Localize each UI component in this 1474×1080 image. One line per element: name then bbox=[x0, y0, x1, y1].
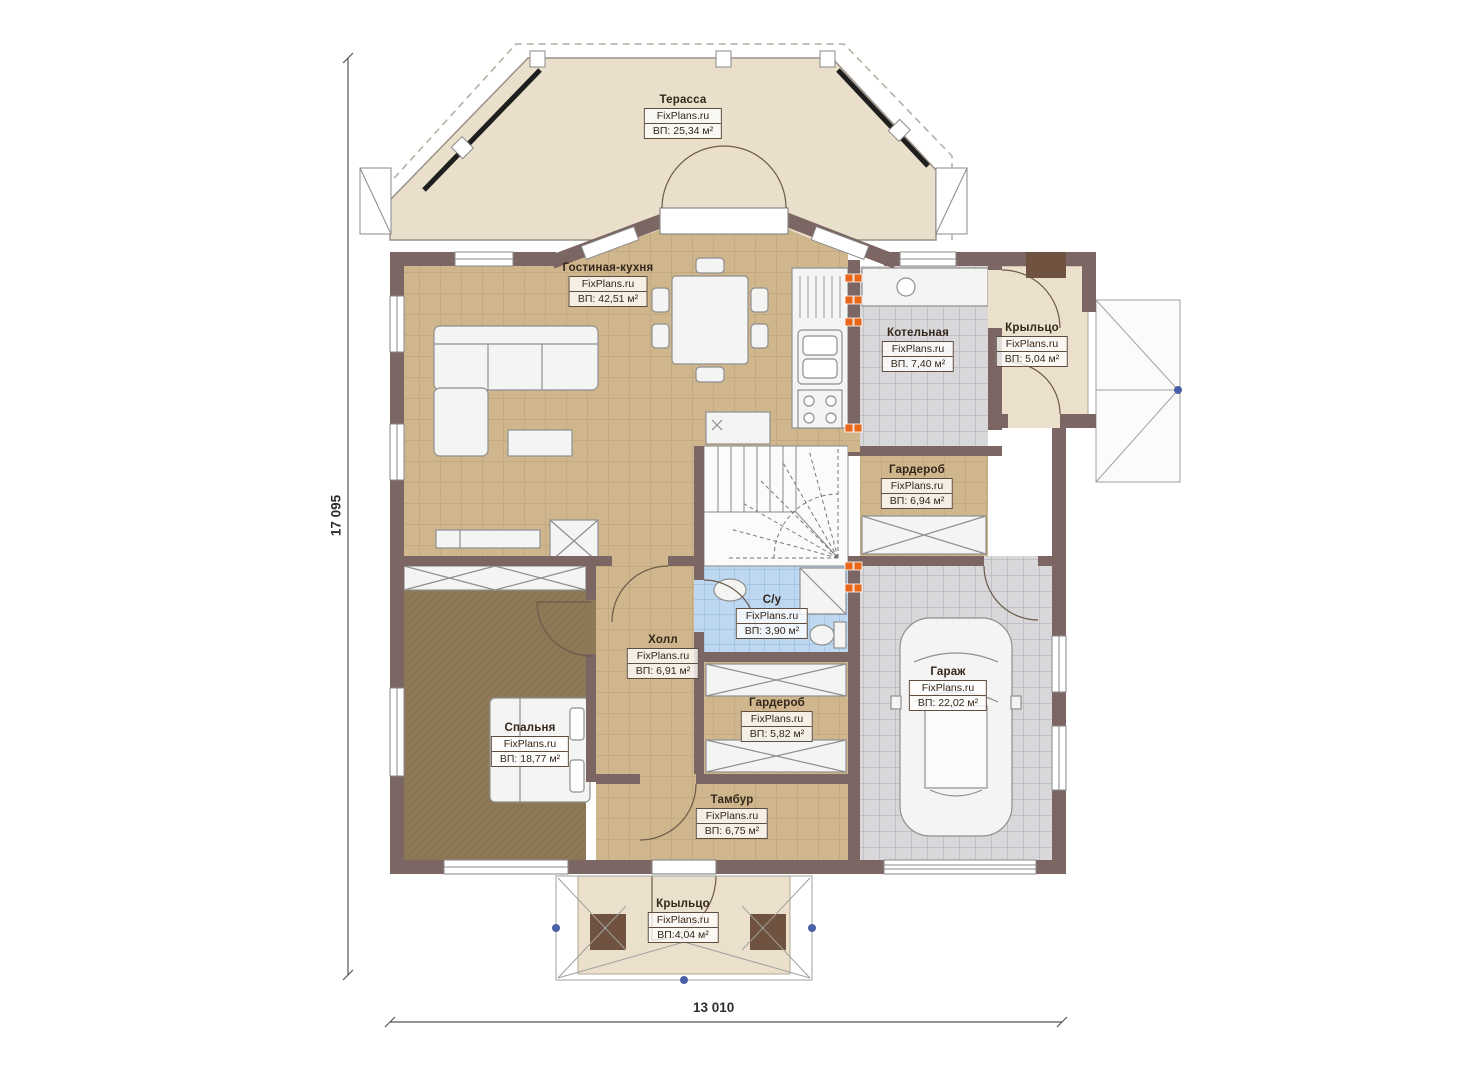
canopy-dot-right bbox=[1174, 386, 1182, 394]
room-area: ВП. 7,40 м² bbox=[883, 357, 953, 371]
brand-watermark: FixPlans.ru bbox=[742, 712, 812, 727]
room-name: Крыльцо bbox=[996, 322, 1068, 334]
brand-watermark: FixPlans.ru bbox=[882, 479, 952, 494]
room-label-garage: Гараж FixPlans.ru ВП: 22,02 м² bbox=[909, 666, 987, 711]
room-label-living-kitchen: Гостиная-кухня FixPlans.ru ВП: 42,51 м² bbox=[563, 262, 654, 307]
room-label-boiler: Котельная FixPlans.ru ВП. 7,40 м² bbox=[882, 327, 954, 372]
brand-watermark: FixPlans.ru bbox=[737, 609, 807, 624]
room-label-wardrobe-upper: Гардероб FixPlans.ru ВП: 6,94 м² bbox=[881, 464, 953, 509]
brand-watermark: FixPlans.ru bbox=[645, 109, 721, 124]
brand-watermark: FixPlans.ru bbox=[649, 913, 718, 928]
room-label-tambour: Тамбур FixPlans.ru ВП: 6,75 м² bbox=[696, 794, 768, 839]
room-area: ВП:4,04 м² bbox=[649, 928, 718, 942]
brand-watermark: FixPlans.ru bbox=[883, 342, 953, 357]
dimension-width-label: 13 010 bbox=[693, 1000, 734, 1015]
room-area: ВП: 42,51 м² bbox=[570, 292, 646, 306]
room-name: Гардероб bbox=[741, 697, 813, 709]
room-area: ВП: 5,82 м² bbox=[742, 727, 812, 741]
canopy-dot-left bbox=[552, 924, 560, 932]
room-name: Холл bbox=[627, 634, 699, 646]
floor-plan-page: Терасса FixPlans.ru ВП: 25,34 м² Гостина… bbox=[0, 0, 1474, 1080]
room-label-bathroom: С/у FixPlans.ru ВП: 3,90 м² bbox=[736, 594, 808, 639]
room-label-wardrobe-lower: Гардероб FixPlans.ru ВП: 5,82 м² bbox=[741, 697, 813, 742]
room-area: ВП: 6,75 м² bbox=[697, 824, 767, 838]
room-name: Терасса bbox=[644, 94, 722, 106]
brand-watermark: FixPlans.ru bbox=[997, 337, 1067, 352]
room-area: ВП: 18,77 м² bbox=[492, 752, 568, 766]
room-area: ВП: 22,02 м² bbox=[910, 696, 986, 710]
canopy-dot-bottom bbox=[680, 976, 688, 984]
room-label-terrace: Терасса FixPlans.ru ВП: 25,34 м² bbox=[644, 94, 722, 139]
room-label-bedroom: Спальня FixPlans.ru ВП: 18,77 м² bbox=[491, 722, 569, 767]
room-name: С/у bbox=[736, 594, 808, 606]
room-name: Гостиная-кухня bbox=[563, 262, 654, 274]
brand-watermark: FixPlans.ru bbox=[492, 737, 568, 752]
room-area: ВП: 25,34 м² bbox=[645, 124, 721, 138]
dimension-height-label: 17 095 bbox=[329, 486, 344, 546]
brand-watermark: FixPlans.ru bbox=[570, 277, 646, 292]
room-name: Котельная bbox=[882, 327, 954, 339]
right-porch-canopy bbox=[1096, 300, 1180, 482]
room-area: ВП: 5,04 м² bbox=[997, 352, 1067, 366]
room-name: Спальня bbox=[491, 722, 569, 734]
room-label-hall: Холл FixPlans.ru ВП: 6,91 м² bbox=[627, 634, 699, 679]
room-area: ВП: 3,90 м² bbox=[737, 624, 807, 638]
brand-watermark: FixPlans.ru bbox=[628, 649, 698, 664]
room-name: Крыльцо bbox=[648, 898, 719, 910]
room-area: ВП: 6,94 м² bbox=[882, 494, 952, 508]
room-name: Гараж bbox=[909, 666, 987, 678]
brand-watermark: FixPlans.ru bbox=[910, 681, 986, 696]
brand-watermark: FixPlans.ru bbox=[697, 809, 767, 824]
room-name: Гардероб bbox=[881, 464, 953, 476]
room-name: Тамбур bbox=[696, 794, 768, 806]
room-label-porch-bottom: Крыльцо FixPlans.ru ВП:4,04 м² bbox=[648, 898, 719, 943]
stairs-floor bbox=[704, 446, 848, 566]
room-area: ВП: 6,91 м² bbox=[628, 664, 698, 678]
room-label-porch-right: Крыльцо FixPlans.ru ВП: 5,04 м² bbox=[996, 322, 1068, 367]
canopy-dot-porch-right bbox=[808, 924, 816, 932]
floor-plan-drawing bbox=[0, 0, 1474, 1080]
